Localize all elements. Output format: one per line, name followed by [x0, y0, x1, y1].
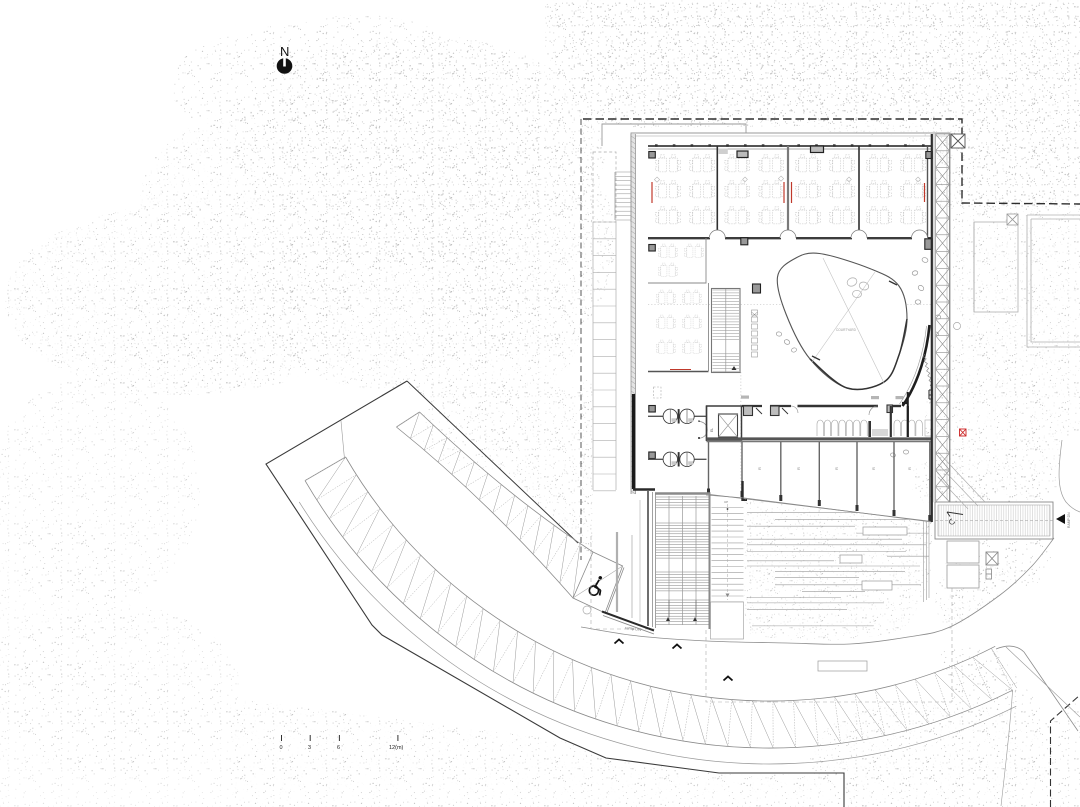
svg-text:N: N: [280, 44, 289, 59]
svg-text:EL: EL: [710, 428, 714, 432]
svg-text:6: 6: [337, 745, 340, 751]
svg-text:12(m): 12(m): [389, 745, 404, 751]
svg-text:RAMP DN: RAMP DN: [1067, 512, 1071, 528]
svg-text:R: R: [796, 467, 801, 470]
svg-text:3: 3: [308, 745, 311, 751]
svg-text:R: R: [757, 467, 762, 470]
svg-text:R: R: [907, 467, 912, 470]
svg-text:R: R: [834, 467, 839, 470]
svg-text:COURTYARD: COURTYARD: [836, 328, 857, 332]
svg-text:R: R: [871, 467, 876, 470]
svg-text:UP: UP: [724, 500, 728, 504]
svg-text:0: 0: [280, 745, 283, 751]
